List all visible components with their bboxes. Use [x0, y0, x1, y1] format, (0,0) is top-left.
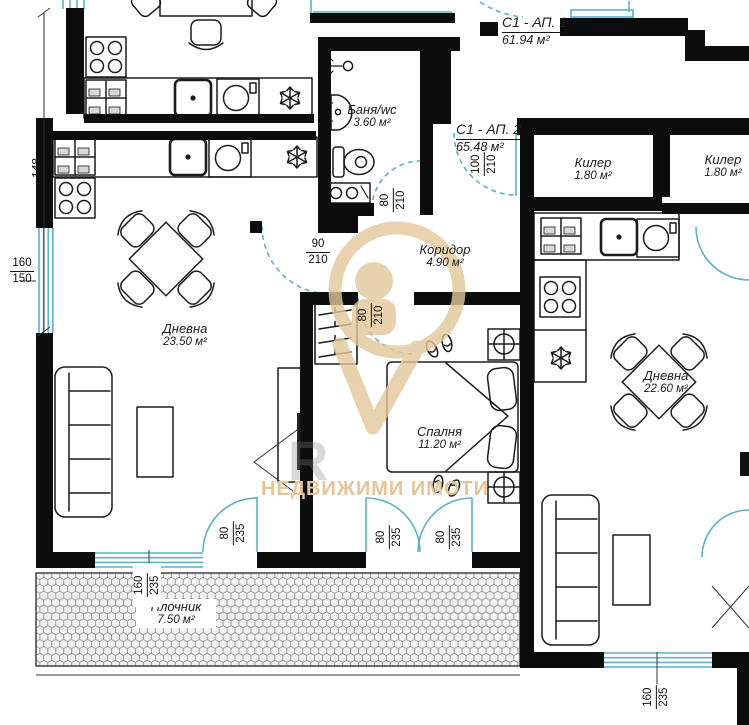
ap1-area: 61.94 м²	[502, 33, 569, 48]
ap1-door-arc-1	[696, 227, 749, 280]
ap1-door-arc-2	[702, 510, 749, 557]
coffee-table-2	[613, 535, 650, 605]
kitchen-upper	[84, 37, 312, 118]
sofa-1	[55, 367, 112, 517]
doors	[203, 2, 749, 557]
ap1-name: С1 - АП. 1	[502, 14, 569, 33]
dim-window-left: 160150	[1, 257, 43, 285]
room-label-corridor: Коридор 4.90 м²	[410, 242, 480, 271]
room-label-living2: Дневна 22.60 м²	[630, 368, 702, 397]
room-label-bath: Баня/wc 3.60 м²	[337, 102, 407, 131]
dim-window-se: 160235	[642, 675, 670, 719]
terrace-paving	[36, 573, 520, 675]
dim-french-left: 80235	[375, 515, 403, 559]
dim-terrace-door: 80235	[219, 511, 247, 555]
sofa-2	[542, 495, 599, 645]
room-label-upper-partial: 1.80 м²	[625, 0, 695, 5]
floor-plan: С1 - АП. 1 61.94 м² С1 - АП. 2 65.48 м² …	[0, 0, 749, 725]
coffee-table-1	[137, 407, 173, 477]
apartment-label-ap1: С1 - АП. 1 61.94 м²	[502, 14, 569, 48]
window-top-upper	[63, 0, 84, 9]
room-label-storage1: Килер 1.80 м²	[558, 155, 628, 184]
dim-french-right: 80235	[435, 515, 463, 559]
dim-bath-door: 80210	[379, 178, 407, 222]
dim-wall-left: 148	[30, 144, 43, 194]
room-label-storage2: Килер 1.80 м²	[688, 152, 749, 181]
dim-window-sw: 160235	[133, 563, 161, 607]
dim-entry-door: 100210	[470, 142, 498, 186]
watermark-brand-text: НЕДВИЖИМИ ИМОТИ	[240, 478, 510, 501]
dining-set-1	[85, 178, 248, 341]
kitchen-ap1	[534, 213, 679, 382]
nightstand-1	[488, 329, 520, 360]
tv-2	[712, 452, 749, 628]
room-label-bedroom: Спалня 11.20 м²	[402, 424, 477, 453]
upper-dining-partial	[129, 0, 279, 50]
ap2-name: С1 - АП. 2	[456, 121, 523, 140]
kitchen-ap2	[53, 137, 317, 218]
dim-living-door: 90210	[301, 238, 335, 266]
dim-bedroom-door: 80210	[357, 293, 385, 337]
room-label-living1: Дневна 23.50 м²	[145, 321, 225, 350]
